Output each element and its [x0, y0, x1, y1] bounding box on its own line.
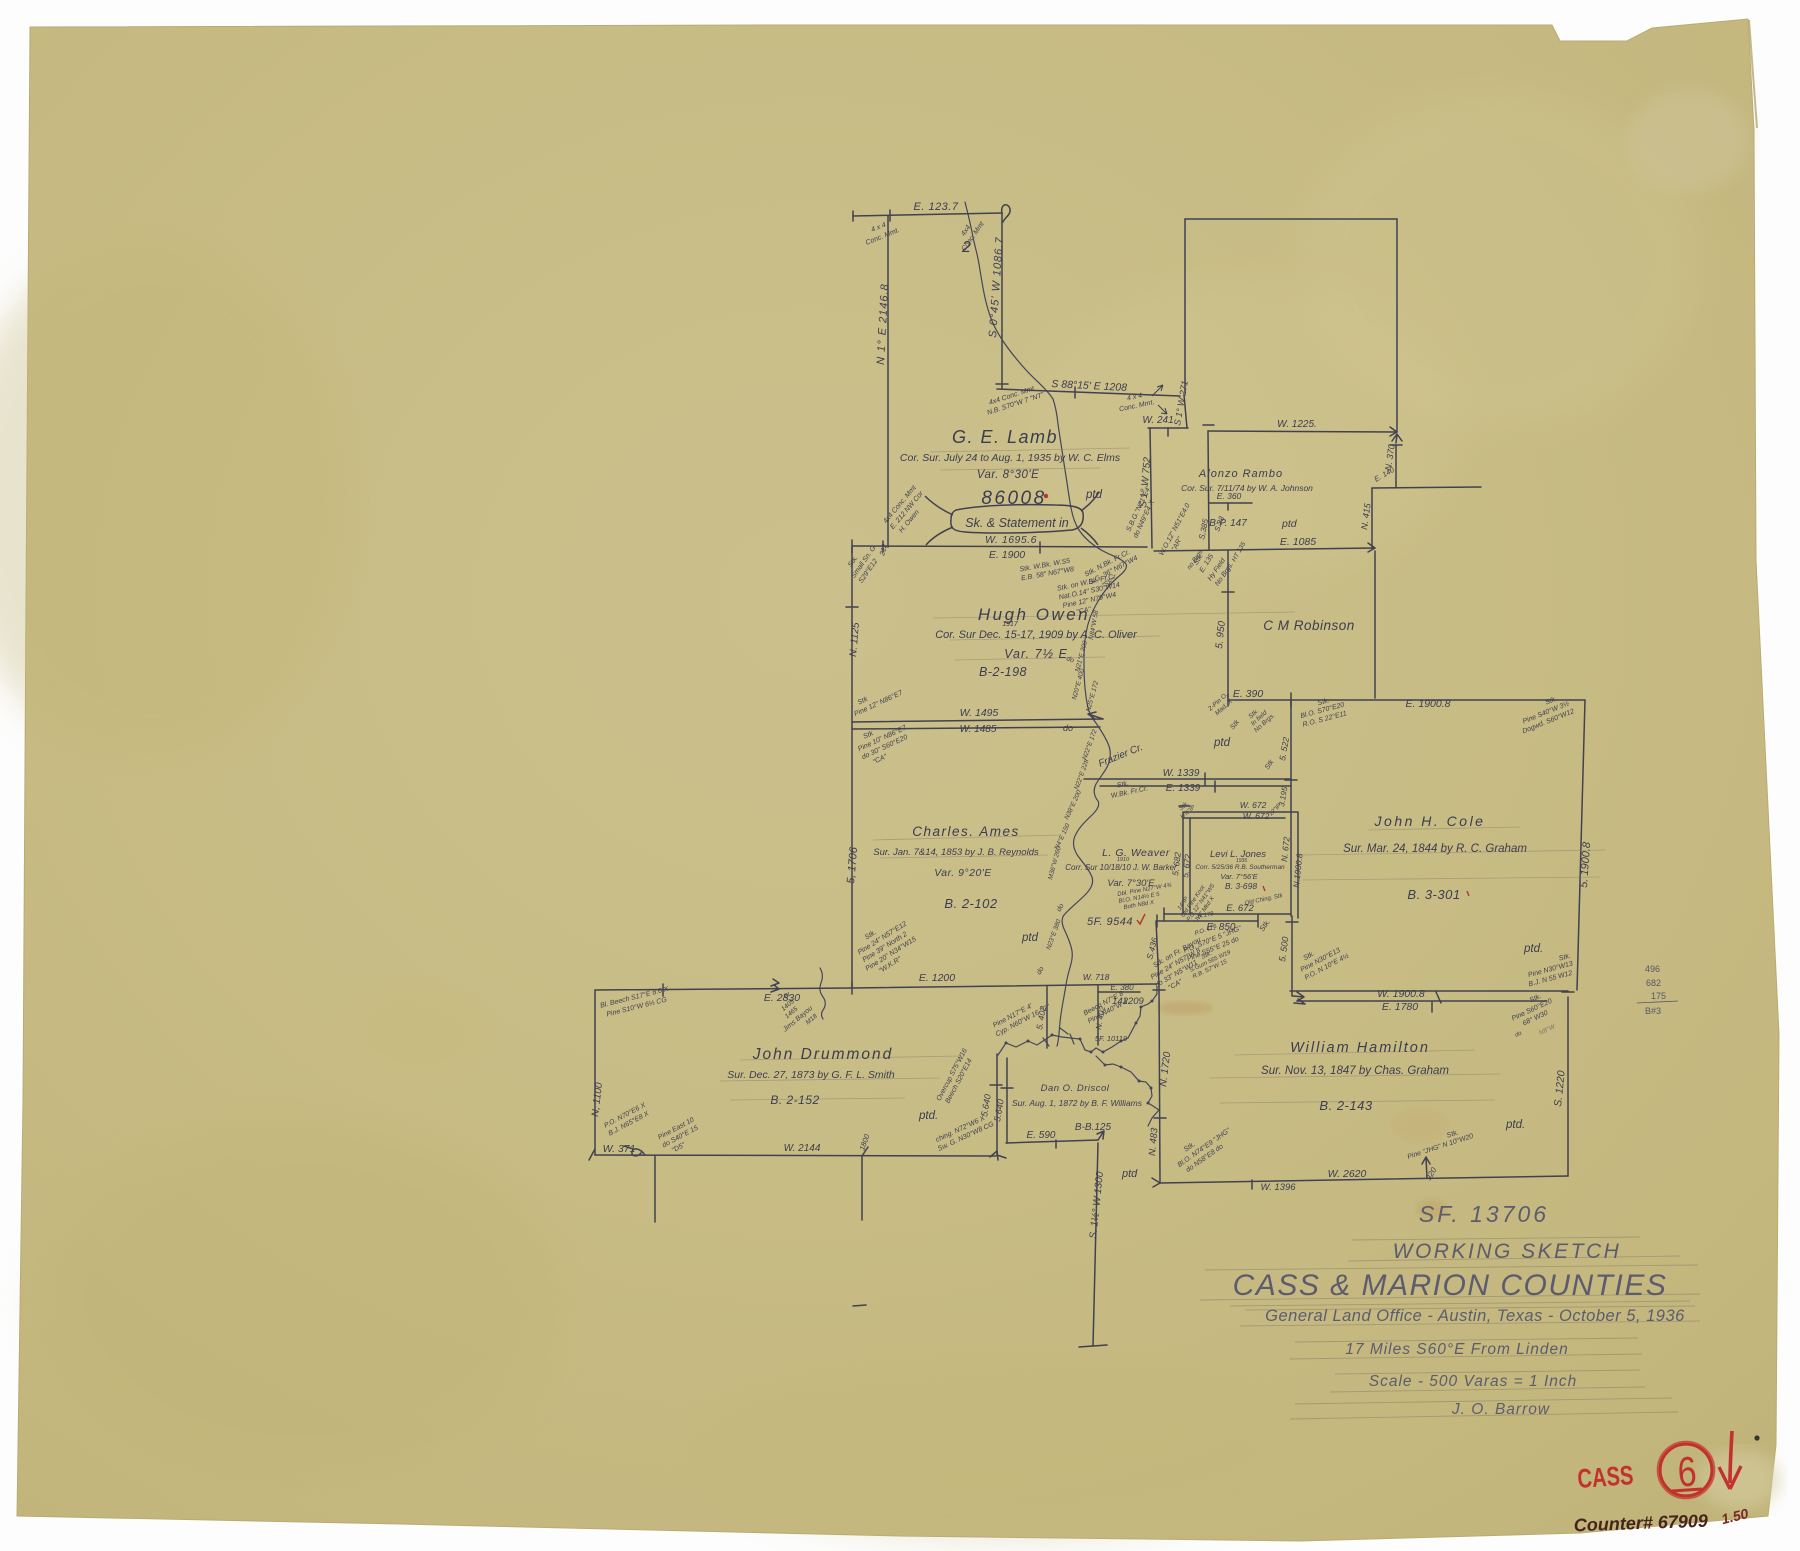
svg-text:B. 2-143: B. 2-143: [1319, 1098, 1372, 1113]
svg-text:ptd: ptd: [1281, 518, 1298, 530]
svg-text:do: do: [1063, 723, 1073, 733]
svg-text:W. 2620: W. 2620: [1328, 1168, 1367, 1180]
svg-text:Var. 9°20'E: Var. 9°20'E: [934, 867, 992, 879]
svg-text:ptd: ptd: [1085, 489, 1103, 501]
svg-text:Sk. & Statement in: Sk. & Statement in: [965, 516, 1069, 530]
svg-text:W. 1495: W. 1495: [960, 707, 999, 719]
svg-text:Var. 7½ E: Var. 7½ E: [1004, 647, 1068, 661]
svg-text:WORKING SKETCH: WORKING SKETCH: [1393, 1240, 1622, 1263]
svg-text:ptd.: ptd.: [1505, 1119, 1525, 1131]
svg-text:E. 380: E. 380: [1110, 983, 1134, 992]
svg-text:Cor. Sur. July 24 to Aug. 1, 1: Cor. Sur. July 24 to Aug. 1, 1935 by W. …: [900, 452, 1121, 464]
svg-text:175: 175: [1651, 991, 1666, 1001]
svg-text:E. 1200: E. 1200: [919, 972, 955, 984]
svg-text:W. 1396: W. 1396: [1260, 1182, 1296, 1193]
svg-text:William Hamilton: William Hamilton: [1290, 1040, 1430, 1056]
svg-text:ptd: ptd: [1121, 1168, 1138, 1180]
svg-text:W. 1695.6: W. 1695.6: [985, 534, 1037, 546]
svg-text:E. 360: E. 360: [1217, 491, 1242, 501]
svg-text:Sur. Jan. 7&14, 1853 by J. B.: Sur. Jan. 7&14, 1853 by J. B. Reynolds: [873, 847, 1039, 858]
svg-text:Sur. Mar. 24, 1844 by R. C. Gr: Sur. Mar. 24, 1844 by R. C. Graham: [1343, 843, 1527, 855]
svg-text:C M Robinson: C M Robinson: [1263, 618, 1355, 633]
svg-text:Alonzo Rambo: Alonzo Rambo: [1198, 468, 1283, 480]
svg-text:John H. Cole: John H. Cole: [1374, 813, 1486, 829]
svg-text:5F. 9544: 5F. 9544: [1087, 916, 1133, 928]
svg-text:Var. 7°56'E: Var. 7°56'E: [1220, 872, 1258, 881]
svg-text:ptd.: ptd.: [918, 1110, 938, 1122]
svg-text:Dan O. Driscol: Dan O. Driscol: [1041, 1083, 1110, 1094]
svg-text:Sur. Aug. 1, 1872 by B. F. Wil: Sur. Aug. 1, 1872 by B. F. Williams: [1012, 1098, 1143, 1108]
svg-text:1936: 1936: [1236, 858, 1247, 864]
svg-text:E. 2830: E. 2830: [764, 992, 800, 1004]
svg-text:J. O. Barrow: J. O. Barrow: [1451, 1401, 1551, 1418]
svg-text:B-2-198: B-2-198: [979, 665, 1027, 679]
svg-text:E. 1085: E. 1085: [1280, 536, 1316, 548]
svg-text:1910: 1910: [1117, 857, 1130, 863]
svg-text:ptd: ptd: [1021, 932, 1039, 944]
svg-text:W. 1339: W. 1339: [1163, 768, 1200, 779]
svg-text:B-B.125: B-B.125: [1075, 1122, 1112, 1133]
svg-text:W. 718: W. 718: [1083, 972, 1110, 982]
svg-text:Charles. Ames: Charles. Ames: [912, 824, 1020, 839]
svg-text:General Land Office - Austin,: General Land Office - Austin, Texas - Oc…: [1265, 1307, 1685, 1325]
svg-text:W. 672: W. 672: [1240, 800, 1267, 810]
svg-text:682: 682: [1646, 978, 1661, 988]
svg-text:W. 1485: W. 1485: [960, 724, 997, 735]
svg-text:B. 2-102: B. 2-102: [944, 896, 997, 911]
svg-text:B#3: B#3: [1645, 1006, 1661, 1016]
svg-text:5F. 10119: 5F. 10119: [1095, 1034, 1128, 1043]
svg-text:W. 241: W. 241: [1142, 415, 1173, 426]
svg-text:SF. 13706: SF. 13706: [1419, 1201, 1549, 1227]
svg-text:B. 2-152: B. 2-152: [770, 1093, 819, 1107]
svg-text:Cor. Sur. 7/11/74 by W. A. Joh: Cor. Sur. 7/11/74 by W. A. Johnson: [1181, 483, 1313, 493]
svg-text:Sur. Dec. 27, 1873 by G. F. L.: Sur. Dec. 27, 1873 by G. F. L. Smith: [727, 1069, 895, 1081]
svg-text:E. 1339: E. 1339: [1166, 783, 1201, 794]
svg-text:W. 672: W. 672: [1243, 811, 1270, 821]
svg-text:G. E. Lamb: G. E. Lamb: [952, 427, 1058, 447]
svg-text:Scale - 500 Varas = 1 Inch: Scale - 500 Varas = 1 Inch: [1369, 1373, 1578, 1390]
svg-text:Sur. Nov. 13, 1847 by Chas. Gr: Sur. Nov. 13, 1847 by Chas. Graham: [1261, 1065, 1449, 1077]
svg-text:W. 1900.8: W. 1900.8: [1377, 988, 1425, 1000]
svg-text:E. 390: E. 390: [1233, 688, 1264, 700]
svg-text:E. 1900.8: E. 1900.8: [1406, 698, 1451, 710]
svg-text:Var. 8°30'E: Var. 8°30'E: [977, 469, 1040, 481]
svg-text:496: 496: [1645, 964, 1660, 974]
svg-text:B. 3-698: B. 3-698: [1225, 881, 1257, 891]
svg-text:W. 1225.: W. 1225.: [1277, 419, 1317, 430]
svg-text:E. 1780: E. 1780: [1382, 1001, 1418, 1013]
svg-text:W. 2144: W. 2144: [784, 1143, 821, 1154]
svg-text:86008: 86008: [981, 488, 1046, 509]
svg-text:ptd.: ptd.: [1523, 943, 1543, 955]
svg-text:17 Miles S60°E From Linden: 17 Miles S60°E From Linden: [1345, 1341, 1568, 1358]
svg-text:E. 590: E. 590: [1027, 1130, 1056, 1141]
svg-text:E. 1900: E. 1900: [989, 549, 1025, 561]
svg-text:1917: 1917: [1002, 621, 1019, 628]
svg-text:W. 371: W. 371: [603, 1143, 636, 1155]
svg-text:CASS: CASS: [1576, 1460, 1634, 1494]
svg-text:B. 3-301: B. 3-301: [1407, 887, 1460, 902]
svg-text:Hugh Owen: Hugh Owen: [978, 605, 1090, 624]
svg-text:Corr. 5/25/36 R.B. Southerman: Corr. 5/25/36 R.B. Southerman: [1195, 864, 1285, 871]
svg-text:ptd: ptd: [1213, 737, 1231, 749]
svg-text:E. 123.7: E. 123.7: [914, 201, 959, 213]
svg-text:John Drummond: John Drummond: [752, 1046, 894, 1063]
svg-text:L. G. Weaver: L. G. Weaver: [1102, 847, 1170, 859]
svg-text:Corr. Sur 10/18/10 J. W. Bark: Corr. Sur 10/18/10 J. W. Barker: [1065, 863, 1177, 872]
svg-text:CASS & MARION COUNTIES: CASS & MARION COUNTIES: [1233, 1269, 1668, 1302]
svg-text:Cor. Sur Dec. 15-17, 1909 by A: Cor. Sur Dec. 15-17, 1909 by A. C. Olive…: [935, 629, 1138, 641]
